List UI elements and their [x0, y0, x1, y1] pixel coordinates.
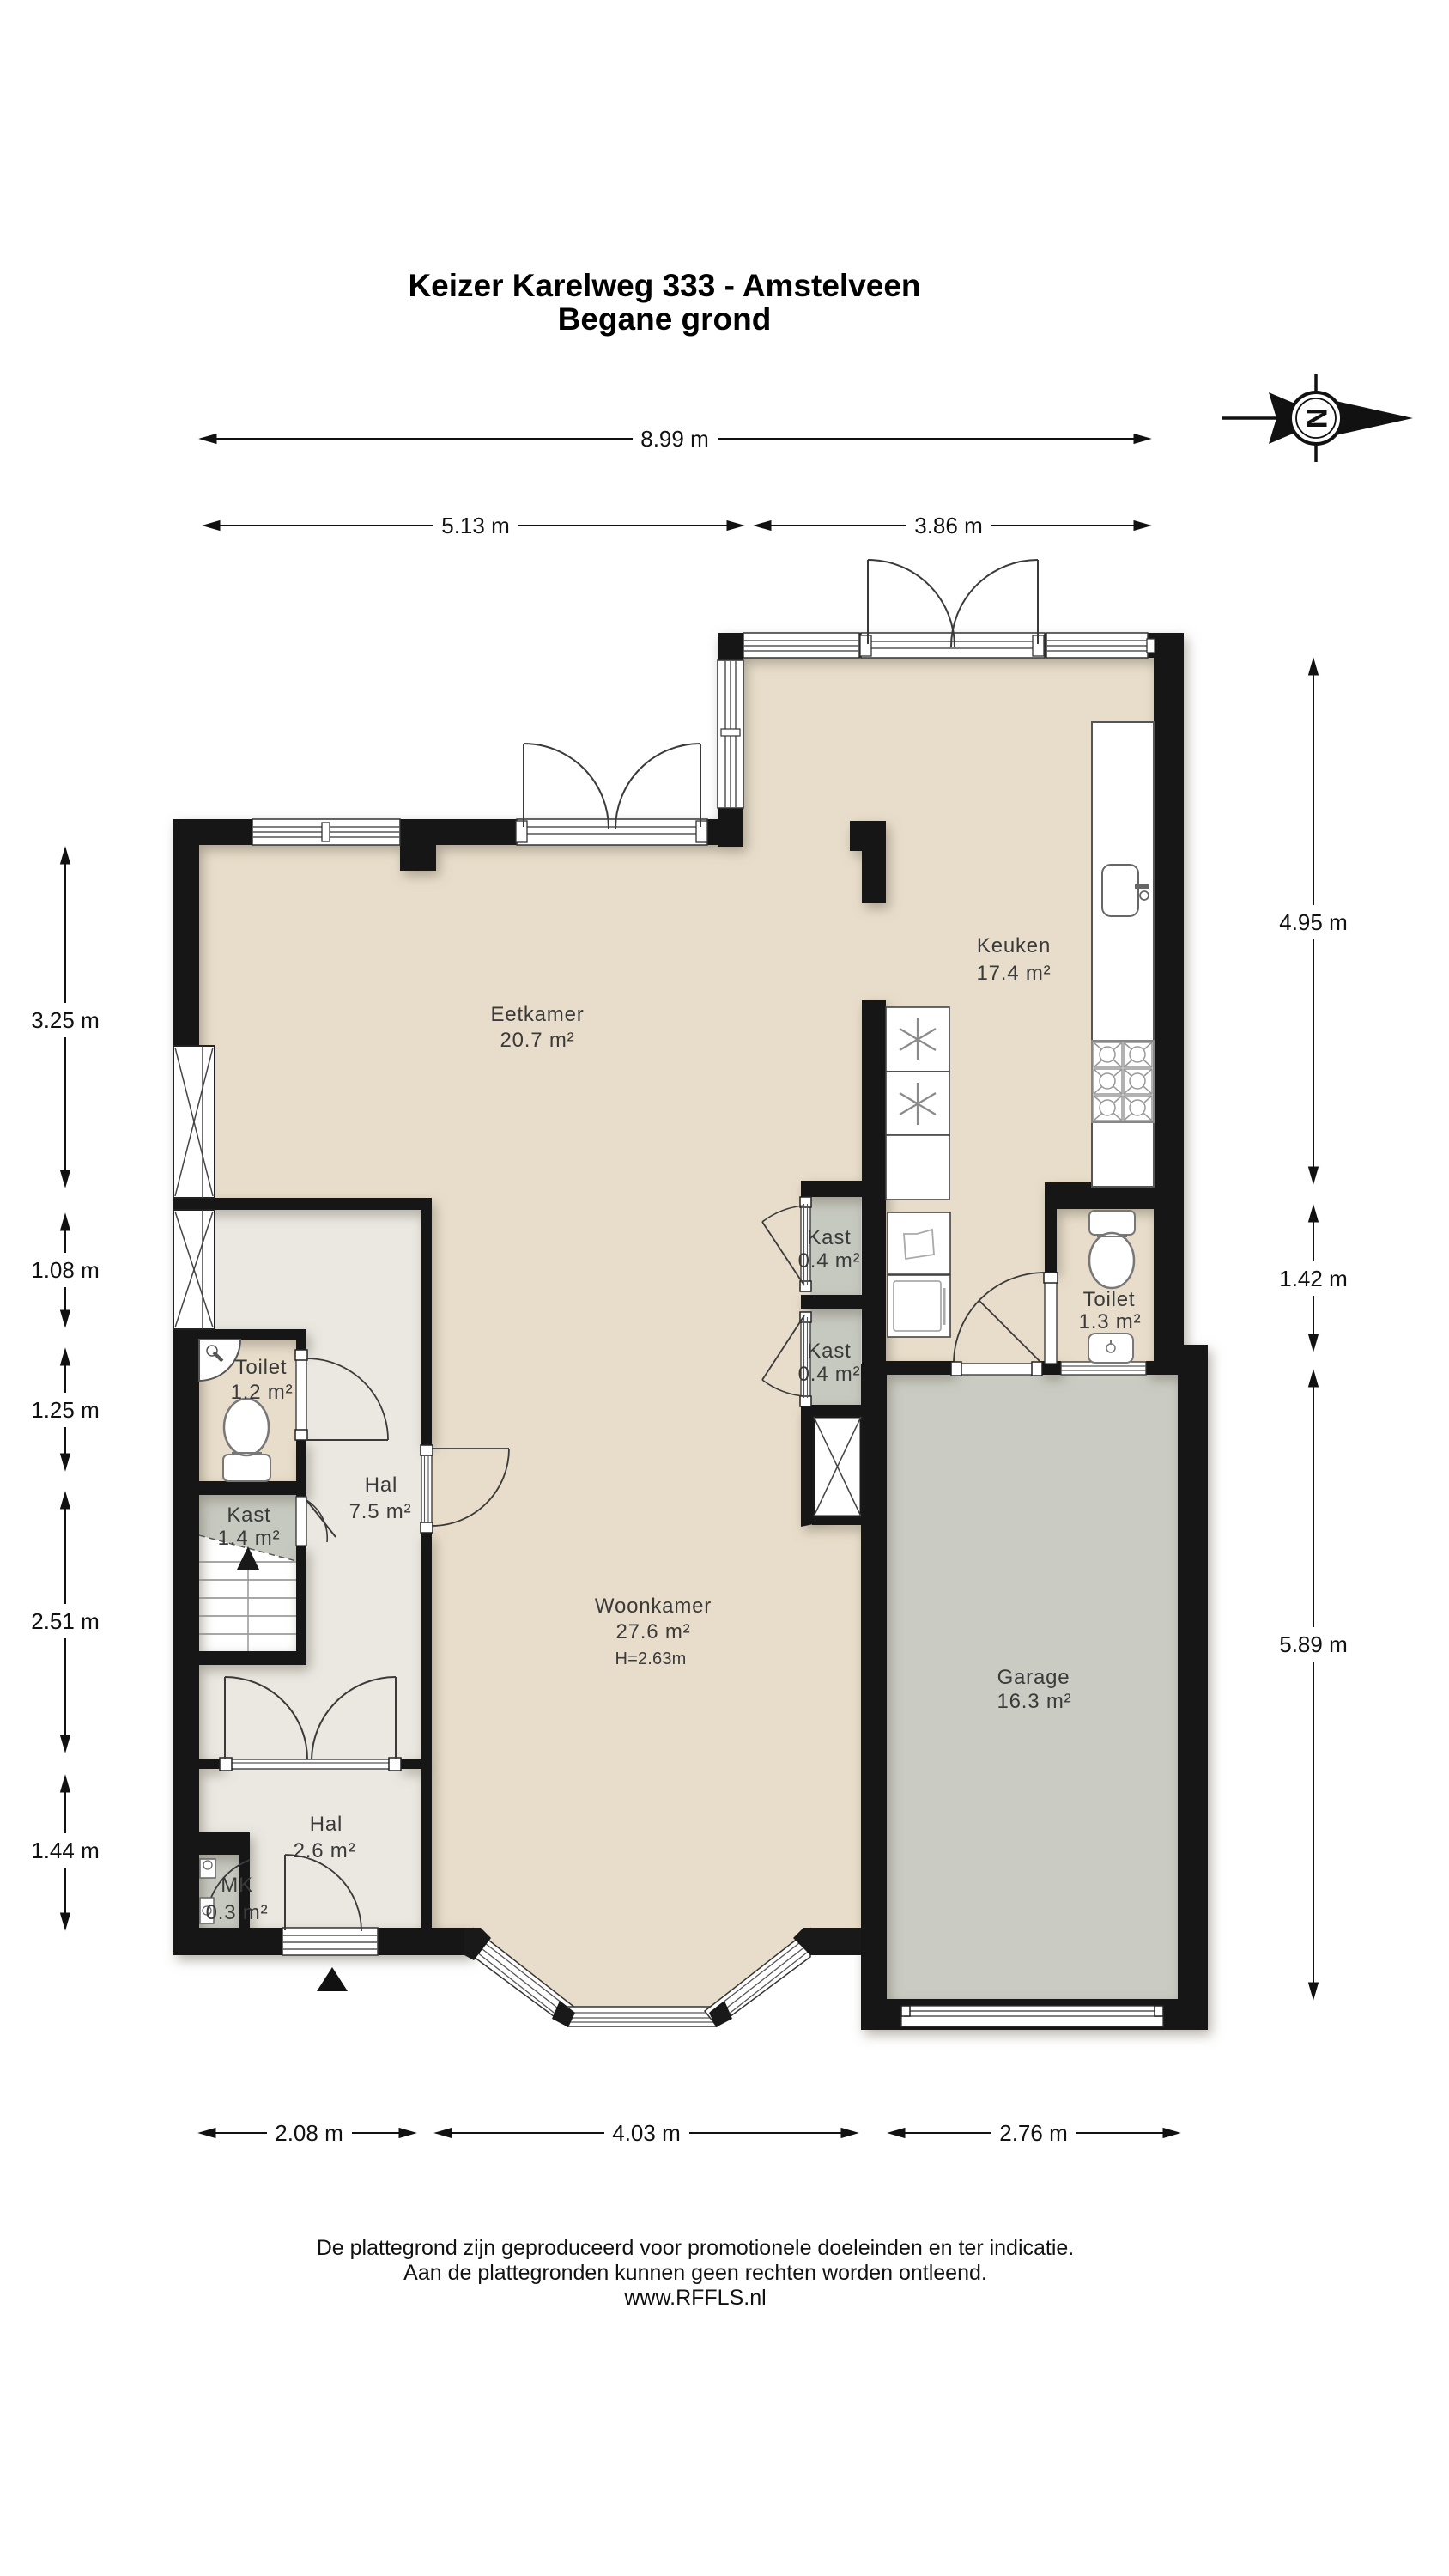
svg-text:5.89 m: 5.89 m [1279, 1631, 1348, 1657]
svg-text:16.3 m²: 16.3 m² [997, 1690, 1072, 1713]
svg-text:17.4 m²: 17.4 m² [977, 962, 1052, 985]
svg-text:1.4 m²: 1.4 m² [218, 1527, 281, 1550]
svg-text:2.51 m: 2.51 m [31, 1608, 100, 1634]
svg-text:1.42 m: 1.42 m [1279, 1266, 1348, 1291]
svg-text:Kast: Kast [227, 1504, 270, 1527]
svg-text:8.99 m: 8.99 m [640, 426, 709, 452]
svg-text:Kast: Kast [807, 1226, 851, 1249]
svg-text:0.3 m²: 0.3 m² [206, 1901, 269, 1924]
svg-text:Hal: Hal [310, 1813, 343, 1836]
svg-text:N: N [1300, 408, 1332, 429]
svg-text:0.4 m²: 0.4 m² [798, 1249, 861, 1273]
svg-text:Hal: Hal [365, 1473, 397, 1497]
svg-text:Woonkamer: Woonkamer [595, 1595, 712, 1618]
svg-text:1.25 m: 1.25 m [31, 1397, 100, 1423]
svg-text:20.7 m²: 20.7 m² [500, 1029, 575, 1052]
svg-text:Aan de plattegronden kunnen ge: Aan de plattegronden kunnen geen rechten… [403, 2261, 987, 2285]
svg-text:3.86 m: 3.86 m [914, 513, 983, 538]
svg-text:Toilet: Toilet [235, 1356, 288, 1379]
svg-text:1.44 m: 1.44 m [31, 1838, 100, 1863]
svg-text:Keuken: Keuken [977, 934, 1051, 957]
svg-text:1.3 m²: 1.3 m² [1079, 1310, 1142, 1334]
svg-text:4.95 m: 4.95 m [1279, 909, 1348, 935]
svg-text:1.2 m²: 1.2 m² [231, 1381, 294, 1404]
svg-text:1.08 m: 1.08 m [31, 1257, 100, 1283]
svg-text:Kast: Kast [807, 1340, 851, 1363]
svg-text:0.4 m²: 0.4 m² [798, 1363, 861, 1386]
svg-text:www.RFFLS.nl: www.RFFLS.nl [623, 2286, 766, 2310]
svg-text:2.6 m²: 2.6 m² [294, 1839, 356, 1862]
svg-text:3.25 m: 3.25 m [31, 1007, 100, 1033]
svg-text:2.76 m: 2.76 m [999, 2120, 1068, 2146]
svg-text:27.6 m²: 27.6 m² [616, 1620, 691, 1643]
svg-text:MK: MK [221, 1874, 253, 1897]
svg-text:De plattegrond zijn geproducee: De plattegrond zijn geproduceerd voor pr… [317, 2236, 1075, 2260]
svg-text:Garage: Garage [997, 1666, 1070, 1689]
svg-text:4.03 m: 4.03 m [612, 2120, 681, 2146]
svg-text:Eetkamer: Eetkamer [490, 1003, 584, 1026]
svg-text:Toilet: Toilet [1083, 1288, 1136, 1311]
svg-text:H=2.63m: H=2.63m [615, 1649, 686, 1668]
svg-text:7.5 m²: 7.5 m² [349, 1500, 412, 1523]
svg-text:Keizer Karelweg 333 - Amstelve: Keizer Karelweg 333 - Amstelveen [408, 268, 920, 303]
svg-text:Begane grond: Begane grond [558, 301, 772, 337]
svg-text:5.13 m: 5.13 m [441, 513, 510, 538]
svg-text:2.08 m: 2.08 m [275, 2120, 343, 2146]
